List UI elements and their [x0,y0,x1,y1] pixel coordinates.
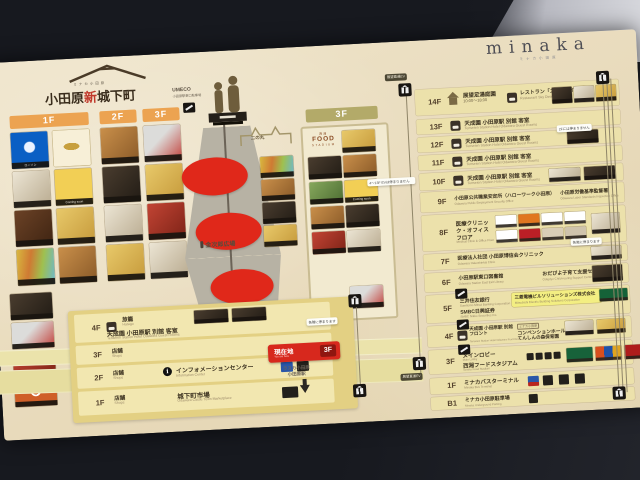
food-tile [343,154,377,178]
photo-thumb [597,318,626,333]
room-photo-thumb [194,309,229,324]
shop-tile [12,170,51,208]
food-tile [345,204,379,228]
shop-tile [147,202,186,240]
statue-icon [200,241,203,248]
shop-tile [102,165,141,203]
current-floor-box: 3F [320,344,337,357]
shop-tile [16,248,55,286]
hotel-icon [451,138,462,149]
shop-tile [143,124,182,162]
hotel-icon [457,330,468,341]
restroom-icon [544,352,551,359]
service-icon [282,386,299,398]
shop-tile [106,243,145,281]
floor-header-2f: 2F [99,109,137,124]
taxi-icon [543,375,554,386]
hotel-icon [453,175,464,186]
food-tile [311,206,345,230]
info-icon: i [163,367,172,376]
elevator-icon [348,294,362,308]
hotel-icon [450,120,461,131]
shop-tile [261,178,295,201]
escalator-icon [183,102,196,113]
shop-tile [58,246,97,284]
photo-thumb [565,320,594,335]
elevator-icon [413,357,427,371]
observation-ev-tag: 展望直通EV [400,373,422,381]
elevator-icon [612,386,626,400]
clinic-logo-card [519,228,541,241]
shop-tile [56,207,95,245]
shop-tile: ローソン [10,131,49,169]
shop-tile [14,209,53,247]
station-label: ラスカ小田原 小田原駅 [283,365,311,378]
clinic-logo-card [542,227,564,240]
bus-icon [528,376,540,387]
elevator-icon [353,384,367,398]
floor-header-food-3f: 3F [305,106,378,123]
shop-tile-coming-soon: Coming soon [54,168,93,206]
parking-icon [529,394,538,403]
shop-tile [52,129,91,167]
floor-header-1f: 1F [9,112,89,129]
food-stadium-logo: 西湘 FOOD STADIUM [307,131,341,155]
escalator-icon [457,319,470,330]
observation-ev-tag: 展望直通EV [385,73,407,81]
clinic-logo-card [564,211,586,224]
minaka-logo: minaka ミナカ小田原 [452,32,625,66]
shinjokamachi-logo: ミナカ小田原 小田原新城下町 [24,78,157,109]
photo-thumb [592,264,623,282]
coin-locker-icon [526,353,533,360]
food-tile [342,129,376,153]
photo-thumb [591,245,622,260]
photo-thumb [552,87,573,104]
coin-locker-icon [575,373,586,384]
clinic-logo-card [541,212,563,225]
ev-skip-note-tag: 4〜13F EVは停まりません [367,177,415,187]
rooftop-garden-icon-base [449,98,457,105]
room-photo-thumb [232,307,267,322]
food-tile [308,156,342,180]
shop-tile [10,292,53,320]
escalator-icon [458,344,471,355]
hotel-icon [452,156,463,167]
photo-thumb [574,85,595,102]
clinic-logo-card [495,215,517,228]
floor-header-3f: 3F [142,107,180,122]
smoking-icon [553,352,560,359]
shop-tile [104,204,143,242]
shop-tile [149,241,188,279]
shop-tile [263,224,297,247]
food-tile [312,231,346,255]
tenant-logo-card [624,344,640,359]
ninomaru-gate-icon [236,119,295,148]
restaurant-icon [507,93,518,104]
clinic-logo-card [496,230,518,243]
photo-thumb [591,212,620,233]
shop-tile [260,155,294,178]
tenant-logo-card [566,347,593,362]
shop-tile [145,163,184,201]
food-tile [309,181,343,205]
photo-thumb [549,167,581,182]
shop-tile [11,321,54,349]
elevator-icon [596,71,610,85]
shop-tile [100,126,139,164]
ninomaru-label: 二の丸 [251,135,265,142]
kinjiro-plaza-label: 金次郎広場 [200,238,235,249]
floor-guide-signboard: ミナカ小田原 小田原新城下町 1F 2F 3F ローソン Coming soon… [0,29,640,441]
tenant-highlight: 三菱電機ビルソリューションズ株式会社 Mitsubishi Electric B… [511,288,602,307]
food-tile [347,229,381,253]
escalator-icon [455,288,468,299]
atm-icon [535,353,542,360]
clinic-logo-card [518,213,540,226]
shop-tile [262,201,296,224]
elevator-icon [398,83,412,97]
ev-charge-icon [559,374,570,385]
you-are-here-badge: 現在地 You are here 3F [268,341,341,363]
